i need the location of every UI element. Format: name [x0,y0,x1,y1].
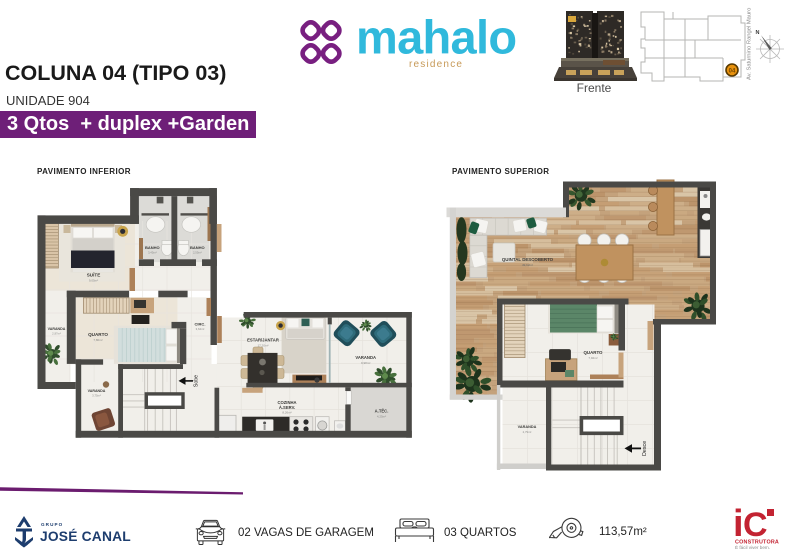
svg-text:É fácil viver bem.: É fácil viver bem. [735,544,770,550]
svg-text:GRUPO: GRUPO [41,522,63,527]
svg-text:C: C [743,506,768,544]
svg-text:JOSÉ CANAL: JOSÉ CANAL [40,528,131,544]
